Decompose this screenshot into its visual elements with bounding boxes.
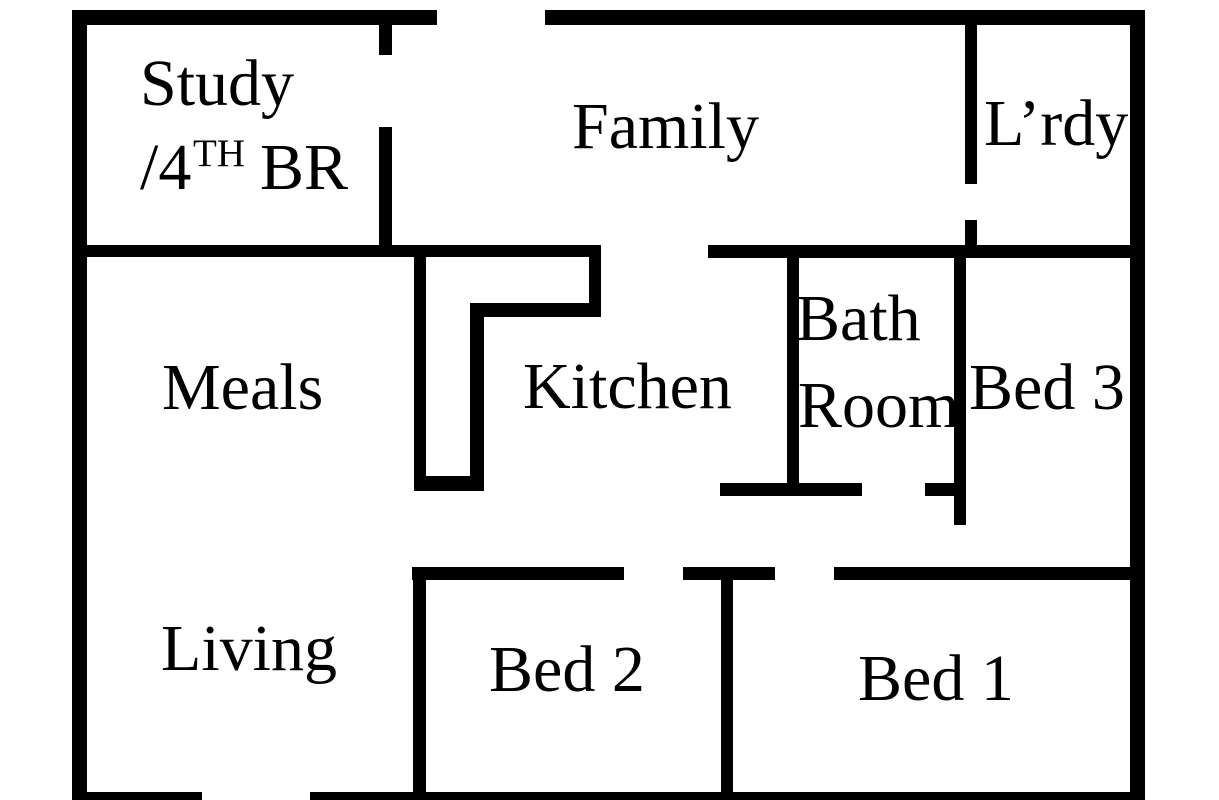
svg-text:Bed 1: Bed 1 xyxy=(858,642,1014,715)
svg-text:Meals: Meals xyxy=(162,351,323,424)
svg-text:L’rdy: L’rdy xyxy=(984,87,1128,160)
svg-text:Study: Study xyxy=(140,47,294,120)
svg-text:Bed 3: Bed 3 xyxy=(969,351,1125,424)
svg-text:Bath: Bath xyxy=(796,282,921,355)
svg-text:Family: Family xyxy=(572,90,759,163)
svg-text:Living: Living xyxy=(161,612,337,685)
svg-text:BR: BR xyxy=(260,131,348,204)
svg-text:Room: Room xyxy=(798,369,959,442)
svg-text:Kitchen: Kitchen xyxy=(523,350,732,423)
svg-text:/4: /4 xyxy=(140,131,191,204)
svg-text:Bed 2: Bed 2 xyxy=(489,633,645,706)
svg-text:TH: TH xyxy=(193,132,245,175)
